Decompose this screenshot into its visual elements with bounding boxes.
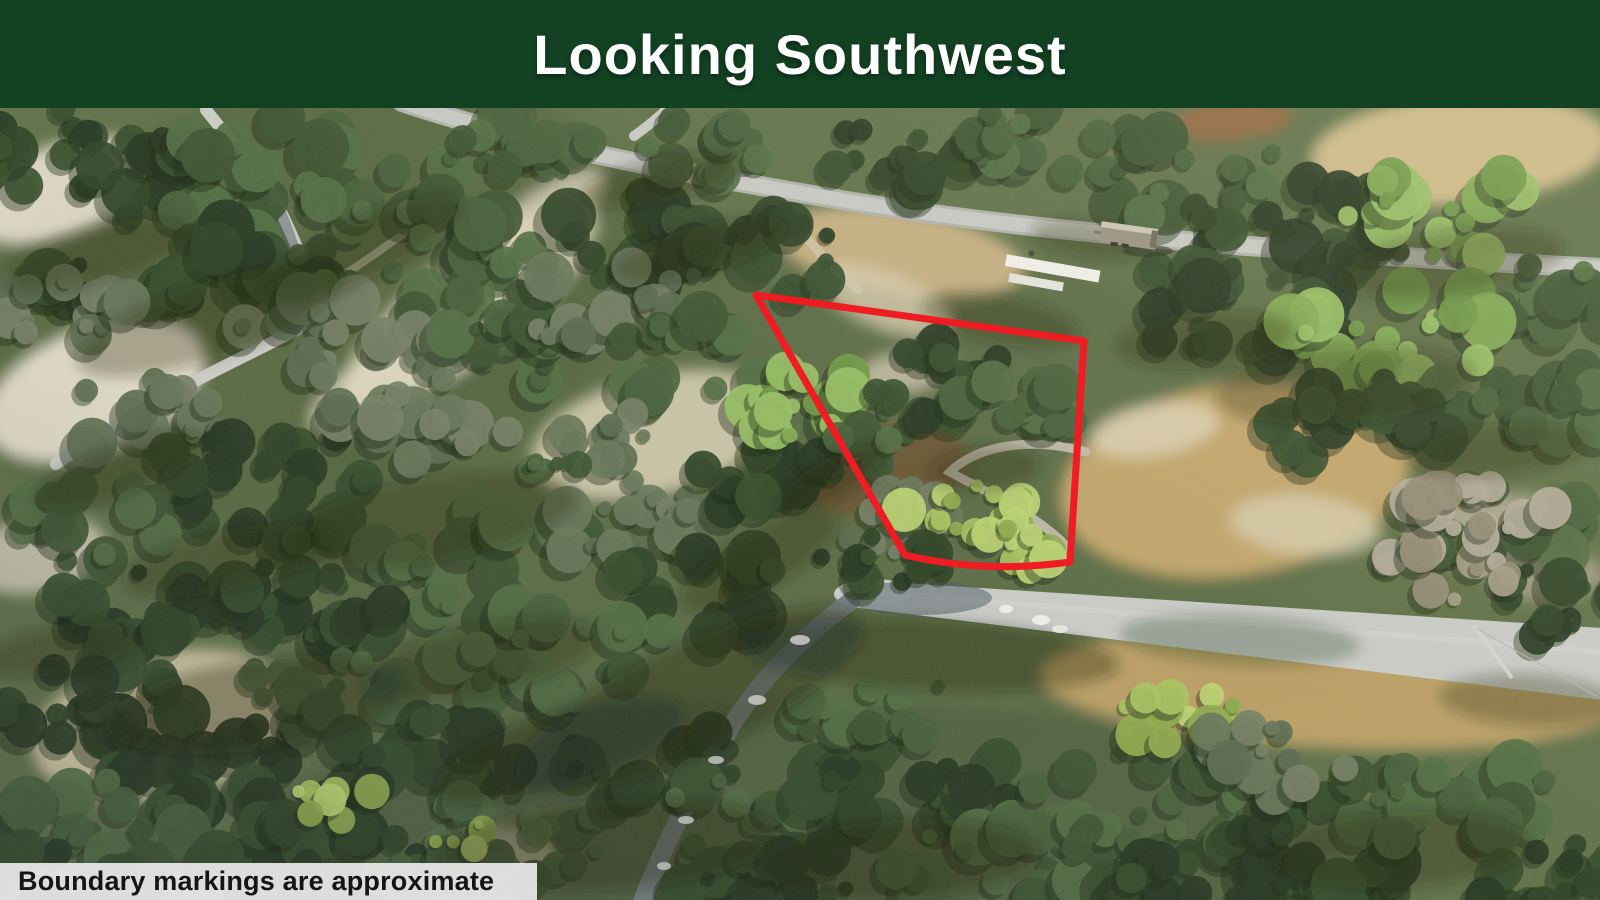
disclaimer-bar: Boundary markings are approximate — [0, 863, 537, 900]
photo-grain — [0, 0, 1600, 900]
page-title: Looking Southwest — [533, 22, 1066, 87]
header-banner: Looking Southwest — [0, 0, 1600, 108]
aerial-photo: Looking Southwest Boundary markings are … — [0, 0, 1600, 900]
disclaimer-text: Boundary markings are approximate — [18, 866, 494, 897]
aerial-photo-canvas — [0, 0, 1600, 900]
